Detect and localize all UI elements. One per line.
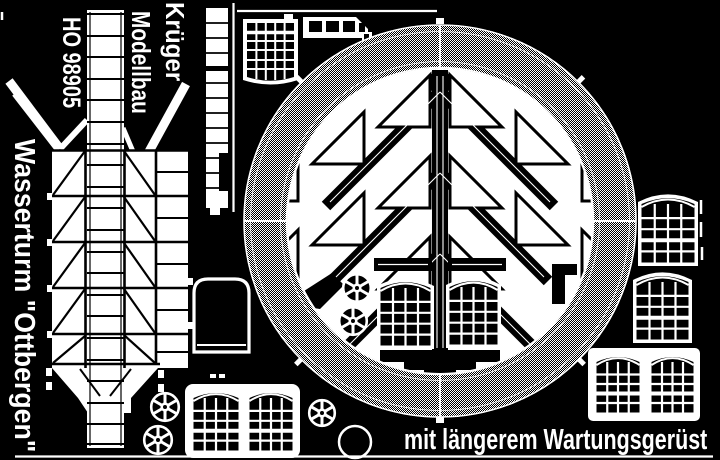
- ring-washer-part: [339, 426, 371, 458]
- grid-panel-part: [243, 14, 298, 85]
- brand-name-line2: Modellbau: [128, 11, 154, 114]
- spoked-wheel-1: [151, 393, 179, 421]
- walkway-part: [303, 17, 372, 42]
- arched-window-1: [638, 194, 698, 266]
- roof-ring-part: [244, 18, 637, 423]
- etch-sheet-scan: Krüger Modellbau HO 98905 Wasserturm "Ot…: [0, 0, 720, 460]
- door-frame-part: [194, 279, 249, 378]
- arched-window-2: [633, 272, 692, 343]
- spoked-wheel-2: [144, 426, 172, 454]
- brand-name-line1: Krüger: [162, 2, 188, 81]
- double-window-bottom-left: [185, 384, 300, 458]
- product-code: HO 98905: [58, 17, 83, 108]
- spoked-wheel-disc-1: [343, 274, 371, 302]
- disc-window-right: [446, 277, 501, 348]
- double-window-bottom-right: [588, 348, 700, 421]
- product-name: Wasserturm "Ottbergen": [9, 139, 38, 452]
- ladder-strip-part: [206, 8, 228, 215]
- variant-note: mit längerem Wartungsgerüst: [404, 426, 707, 455]
- spoked-wheel-disc-2: [339, 307, 367, 335]
- disc-window-left: [377, 278, 434, 349]
- spoked-wheel-3: [309, 400, 335, 426]
- etch-sheet-graphic: [0, 0, 720, 460]
